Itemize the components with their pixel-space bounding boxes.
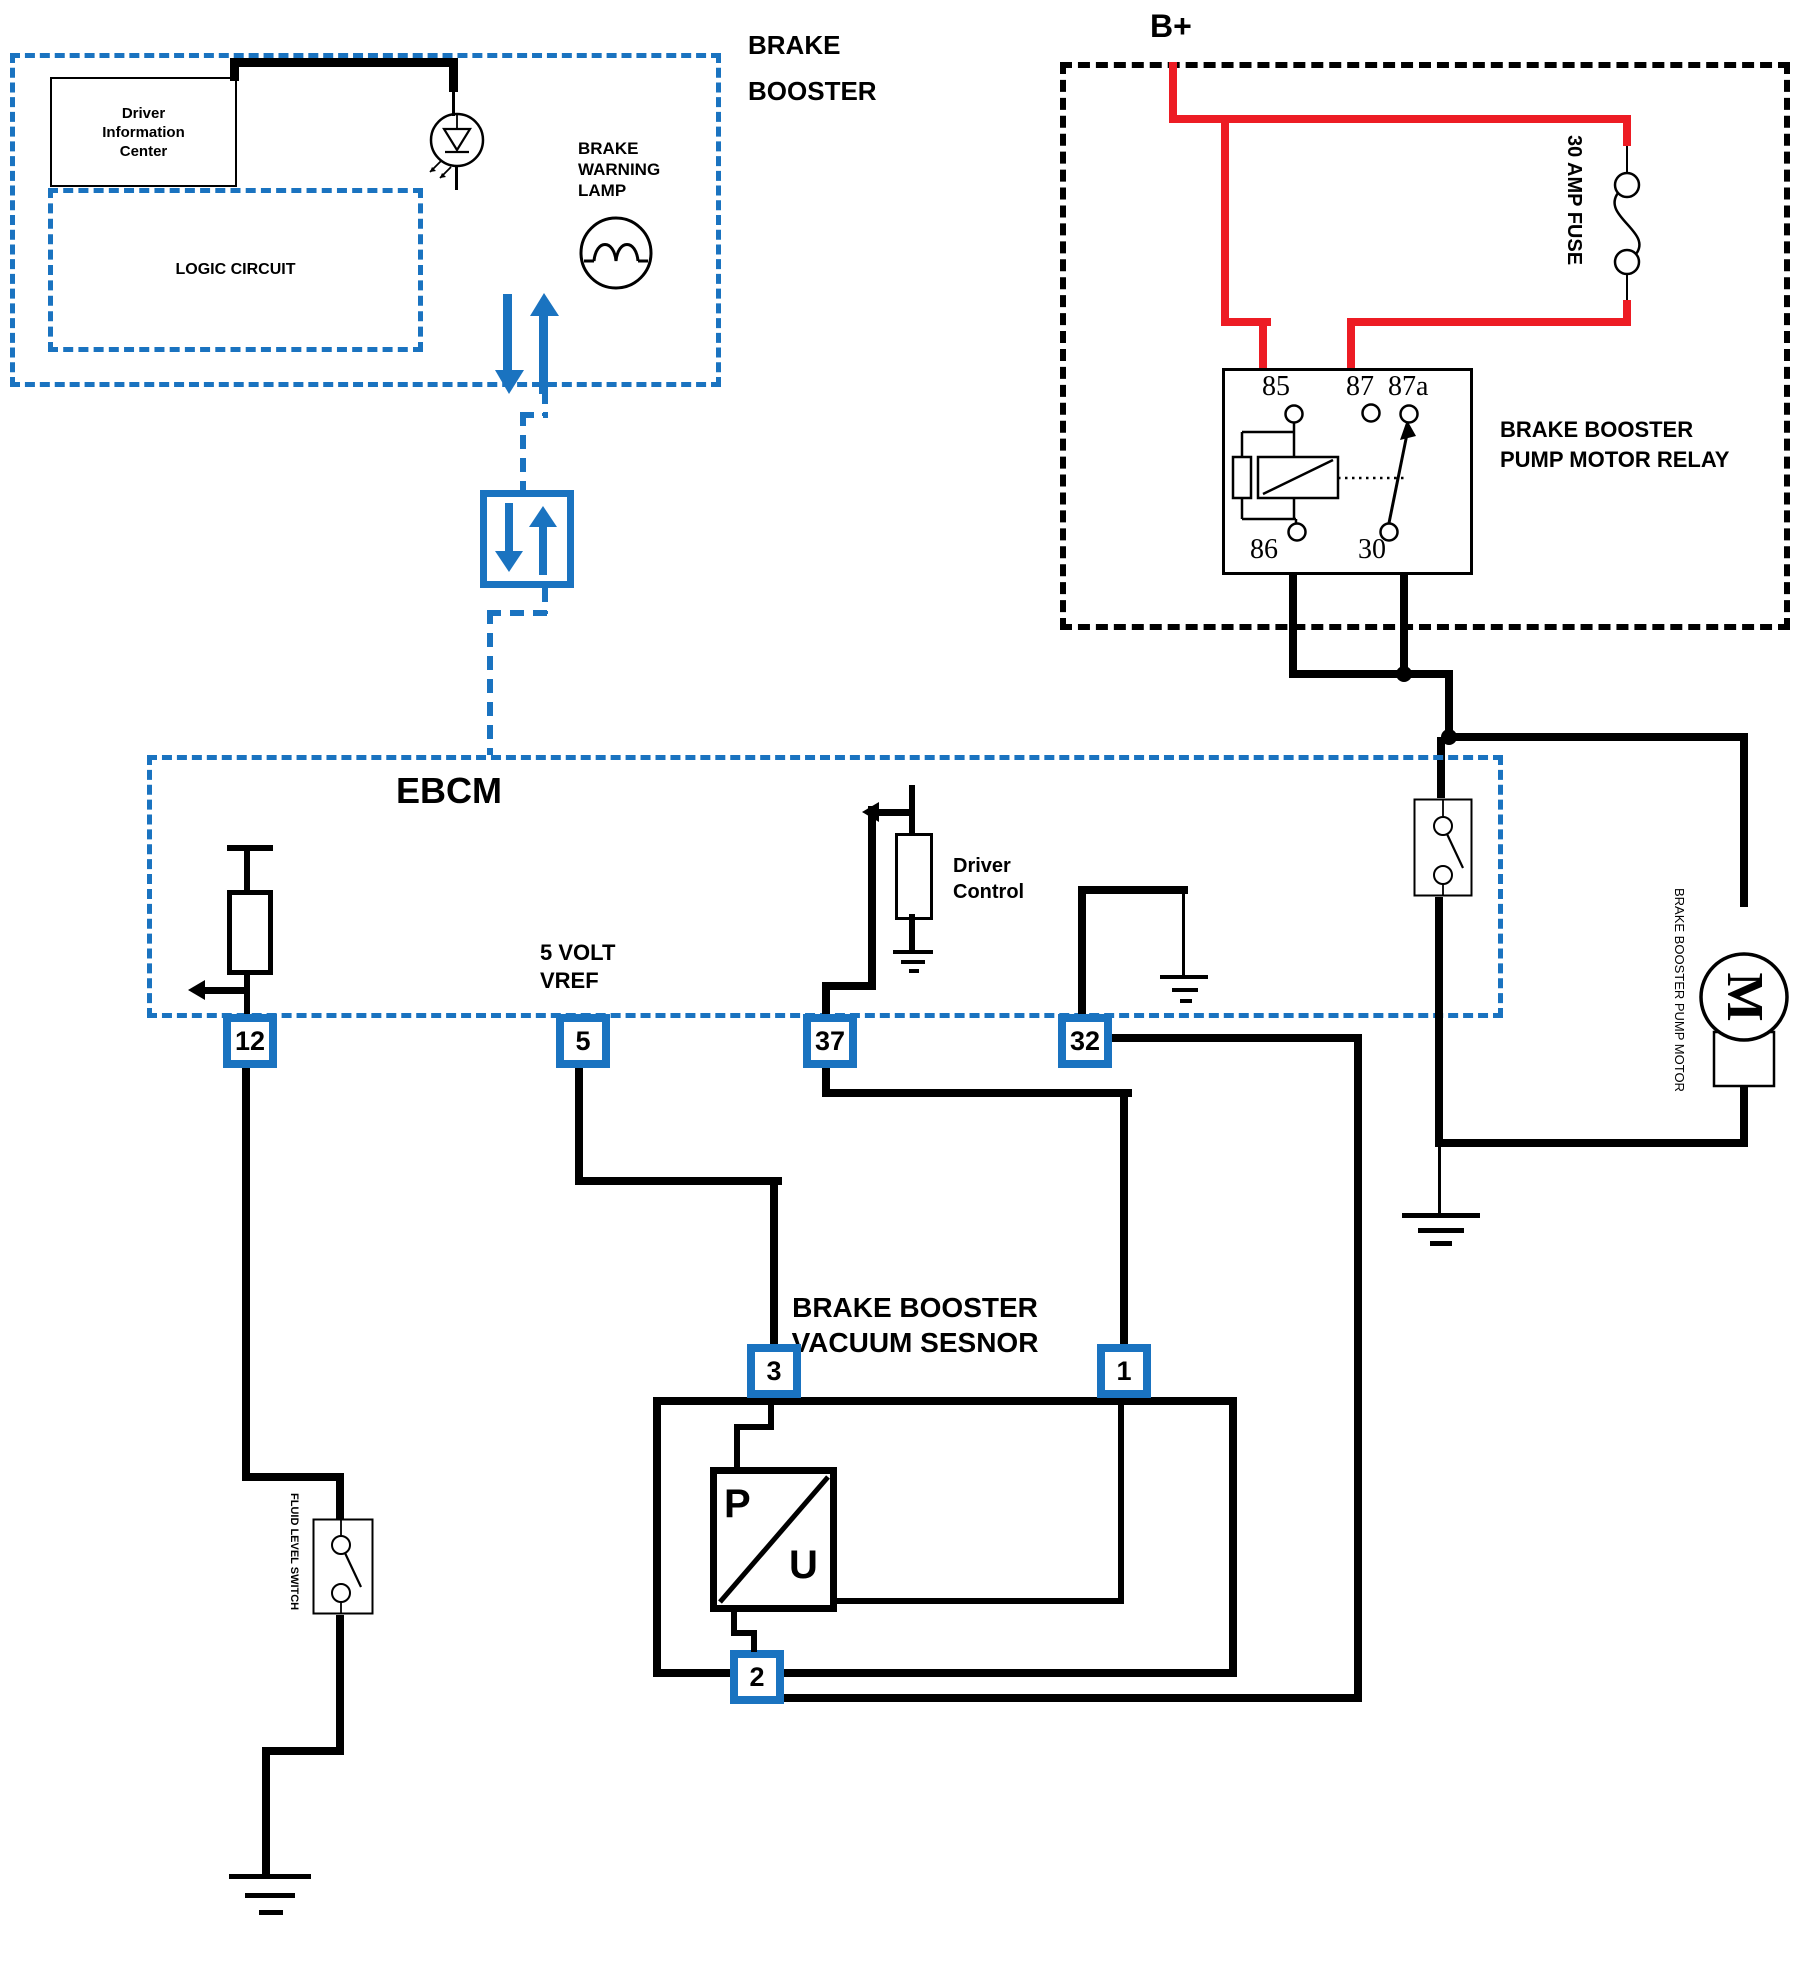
warning-lamp-label-l1: BRAKE [578, 138, 660, 159]
led-indicator-icon [425, 105, 495, 195]
transducer-p-label: P [724, 1482, 751, 1527]
wire [837, 1598, 1124, 1604]
wire [1289, 670, 1408, 678]
wire [449, 58, 458, 92]
wire [822, 982, 876, 990]
logic-circuit-box: LOGIC CIRCUIT [48, 188, 423, 352]
fluid-level-switch-label: FLUID LEVEL SWITCH [288, 1493, 300, 1693]
ground-icon [1172, 988, 1198, 992]
wire [1289, 575, 1297, 678]
wire [868, 806, 876, 990]
power-wire [1169, 62, 1177, 123]
ebcm-label: EBCM [396, 770, 502, 812]
wire [751, 1630, 757, 1652]
relay-pin-87a-label: 87a [1388, 371, 1428, 403]
wire [822, 1089, 1132, 1097]
wire [575, 1177, 782, 1185]
power-wire [1221, 115, 1229, 326]
wire [1740, 733, 1748, 907]
b-plus-label: B+ [1150, 8, 1192, 45]
ground-icon [245, 1893, 295, 1898]
wire [1435, 897, 1443, 1147]
dic-label-line1: Driver [122, 104, 165, 123]
wire [1400, 575, 1408, 678]
relay-pin-87-label: 87 [1346, 371, 1374, 403]
transducer-u-label: U [789, 1543, 818, 1588]
power-wire [1347, 318, 1631, 326]
wire [876, 809, 914, 816]
pin-5-label: 5 [575, 1026, 590, 1057]
wire [1445, 733, 1748, 741]
warning-lamp-icon [578, 215, 658, 295]
wire [1354, 1034, 1362, 1702]
pump-motor-label: BRAKE BOOSTER PUMP MOTOR [1672, 888, 1687, 1128]
wire [244, 851, 250, 890]
relay-pin-30-label: 30 [1358, 534, 1386, 566]
ground-icon [1402, 1213, 1480, 1218]
ground-icon [1180, 999, 1192, 1003]
driver-control-label-l2: Control [953, 881, 1024, 904]
serial-link-wire [520, 412, 526, 490]
driver-transistor-icon [895, 833, 933, 920]
ebcm-pin-32: 32 [1058, 1014, 1112, 1068]
ebcm-pin-12: 12 [223, 1014, 277, 1068]
pin-2-label: 2 [749, 1662, 764, 1693]
power-wire [1169, 115, 1631, 123]
fuse-icon [1595, 146, 1665, 300]
driver-control-label-l1: Driver [953, 855, 1011, 878]
serial-link-arrows-icon [487, 497, 567, 581]
brake-booster-title-line2: BOOSTER [748, 76, 877, 107]
wire [244, 975, 250, 1018]
power-wire [1347, 318, 1355, 372]
ground-icon [901, 960, 925, 964]
relay-name-line2: PUMP MOTOR RELAY [1500, 447, 1729, 473]
ground-icon [1160, 975, 1208, 979]
wire [203, 987, 248, 994]
ground-icon [1418, 1228, 1464, 1233]
pin-37-label: 37 [815, 1026, 845, 1057]
vref-label-line2: VREF [540, 968, 599, 994]
wire [336, 1473, 344, 1520]
fluid-level-switch-icon [312, 1518, 374, 1615]
relay-pin-85-label: 85 [1262, 371, 1290, 403]
wire [1435, 1139, 1748, 1147]
signal-arrow-icon [188, 980, 205, 1000]
fuse-label: 30 AMP FUSE [1562, 135, 1585, 335]
warning-lamp-label: BRAKE WARNING LAMP [578, 138, 660, 201]
serial-link-wire [487, 610, 547, 616]
pullup-resistor-icon [227, 890, 273, 975]
ebcm-pin-5: 5 [556, 1014, 610, 1068]
vref-label-line1: 5 VOLT [540, 940, 615, 966]
wire [1078, 886, 1086, 1018]
wire [1078, 886, 1188, 894]
wire [230, 58, 239, 81]
pin-3-label: 3 [766, 1356, 781, 1387]
power-wire [1259, 318, 1267, 372]
wire [1182, 894, 1185, 975]
ground-icon [229, 1874, 311, 1879]
serial-link-wire [487, 610, 493, 755]
ground-icon [259, 1910, 283, 1915]
wire [734, 1424, 740, 1469]
ground-icon [893, 950, 933, 954]
ebcm-box [147, 755, 1503, 1018]
wire [262, 1747, 270, 1874]
wire [909, 914, 915, 950]
sensor-title-line1: BRAKE BOOSTER [700, 1292, 1130, 1324]
wire [784, 1694, 1362, 1702]
power-wire [1623, 115, 1631, 146]
dic-label-line2: Information [102, 123, 185, 142]
wire [1740, 1087, 1748, 1147]
wire [1118, 1398, 1124, 1604]
driver-information-center-box: Driver Information Center [50, 77, 237, 187]
relay-pin-86-label: 86 [1250, 534, 1278, 566]
serial-data-arrows-icon [493, 290, 563, 398]
pin-12-label: 12 [235, 1026, 265, 1057]
pump-pressure-switch-icon [1413, 798, 1473, 897]
logic-circuit-label: LOGIC CIRCUIT [176, 261, 296, 279]
wire [734, 1424, 774, 1430]
wire [262, 1747, 344, 1755]
wire [242, 1068, 250, 1481]
warning-lamp-label-l3: LAMP [578, 180, 660, 201]
wire [1438, 1147, 1441, 1213]
sensor-pin-3: 3 [747, 1344, 801, 1398]
wire [1112, 1034, 1362, 1042]
ground-icon [909, 969, 919, 973]
dic-label-line3: Center [120, 142, 168, 161]
ground-icon [1430, 1241, 1452, 1246]
wiring-diagram: BRAKE BOOSTER Driver Information Center … [0, 0, 1809, 1974]
motor-m-label: M [1716, 972, 1773, 1021]
brake-booster-title-line1: BRAKE [748, 30, 840, 61]
sensor-pin-2: 2 [730, 1650, 784, 1704]
wire [575, 1068, 583, 1185]
wire [822, 982, 830, 1016]
wire [336, 1615, 344, 1755]
warning-lamp-label-l2: WARNING [578, 159, 660, 180]
wire [230, 58, 458, 67]
pin-32-label: 32 [1070, 1026, 1100, 1057]
relay-name-line1: BRAKE BOOSTER [1500, 417, 1693, 443]
pin-1-label: 1 [1116, 1356, 1131, 1387]
sensor-pin-1: 1 [1097, 1344, 1151, 1398]
wire [242, 1473, 344, 1481]
ebcm-pin-37: 37 [803, 1014, 857, 1068]
internal-supply-bar [227, 845, 273, 851]
pump-motor-icon: M [1698, 950, 1792, 1090]
